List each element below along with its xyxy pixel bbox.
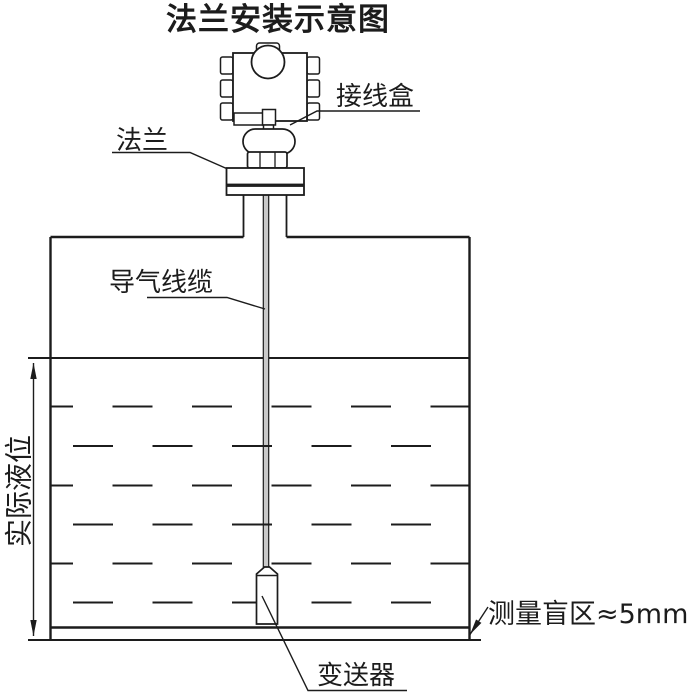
diagram-title: 法兰安装示意图: [166, 2, 390, 38]
diagram-page: 法兰安装示意图 接线盒 法兰 导气线缆 实际液位 变送器 测量盲区≈5mm: [0, 0, 700, 700]
rib: [307, 80, 320, 97]
swivel-joint: [243, 129, 295, 154]
rib: [221, 80, 234, 97]
transmitter-head: [221, 43, 320, 237]
rib: [307, 57, 320, 74]
label-junction-box: 接线盒: [336, 82, 414, 112]
housing-ribs-left: [221, 57, 234, 120]
housing-cap-circle: [252, 46, 285, 79]
label-air-cable: 导气线缆: [109, 268, 213, 298]
tank-outline: [28, 237, 481, 640]
blind-zone-arrow: [470, 607, 488, 635]
probe-body: [257, 567, 278, 624]
flange-gasket-plate: [227, 186, 305, 195]
conduit-block: [263, 110, 276, 126]
hex-nut: [248, 152, 288, 168]
hex-nut-outline: [248, 152, 288, 168]
label-transmitter: 变送器: [317, 661, 395, 691]
air-cable-line: [263, 195, 268, 567]
rib: [221, 57, 234, 74]
label-blind-zone: 测量盲区≈5mm: [488, 599, 688, 630]
diagram-canvas: 法兰安装示意图 接线盒 法兰 导气线缆 实际液位 变送器 测量盲区≈5mm: [0, 0, 700, 700]
flange-plate: [227, 168, 305, 185]
label-flange: 法兰: [116, 126, 168, 156]
cable-gland: [234, 113, 263, 125]
label-actual-level: 实际液位: [3, 435, 36, 547]
rib: [221, 103, 234, 120]
leader-air-cable: [147, 298, 265, 310]
